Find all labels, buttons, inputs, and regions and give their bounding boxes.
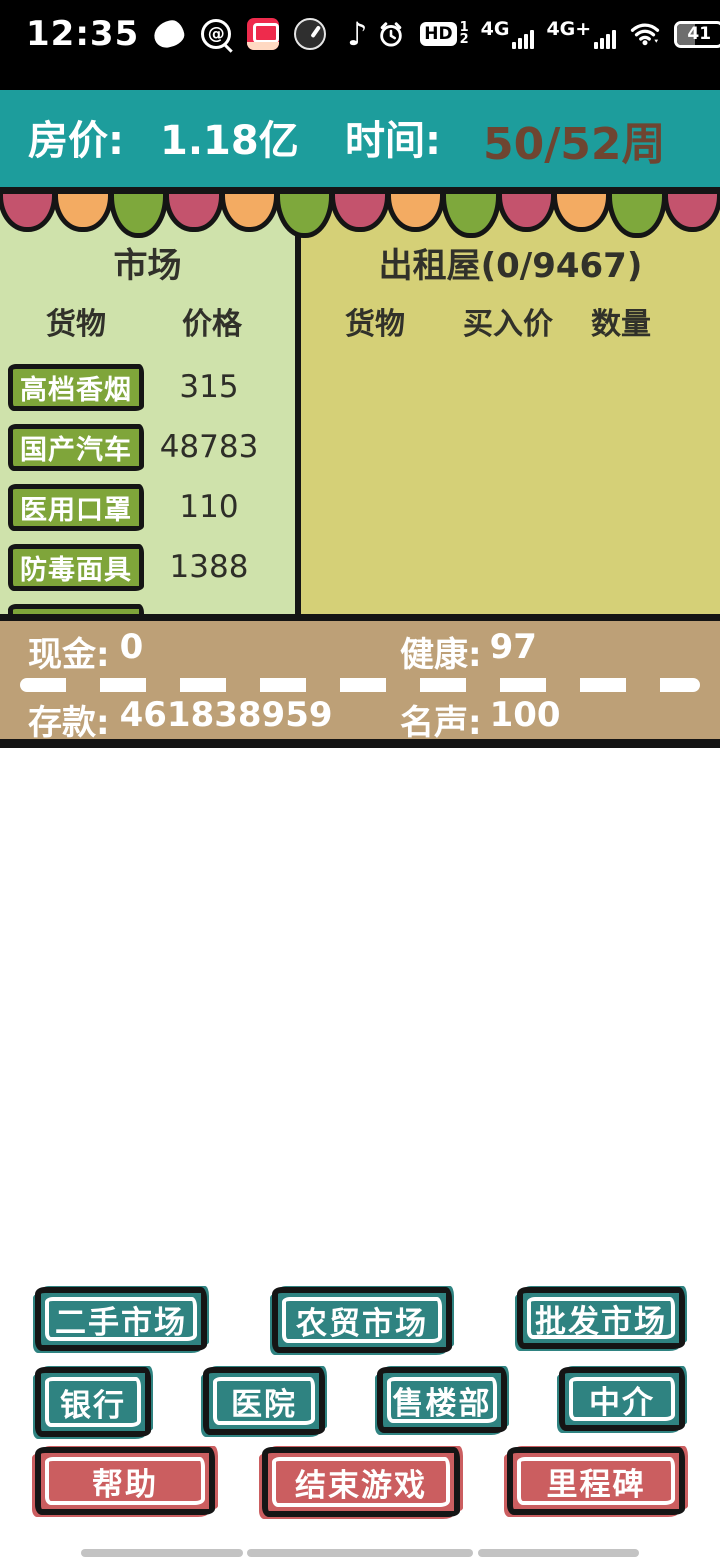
awning-flag: [109, 194, 168, 238]
awning-flag: [220, 194, 279, 232]
goods-button-domestic-car[interactable]: 国产汽车: [8, 424, 144, 471]
rental-house-panel: 出租屋(0/9467) 货物 买入价 数量: [301, 194, 720, 614]
clock-time: 12:35: [26, 14, 139, 54]
awning-flag: [0, 194, 57, 232]
messenger-notification-icon: [152, 17, 186, 51]
market-row: 高档香烟 315: [0, 357, 295, 417]
awning-decoration: [0, 194, 720, 238]
house-price-label: 房价:: [28, 108, 124, 166]
awning-flag: [552, 194, 611, 232]
sim1-signal-icon: 4G: [481, 20, 535, 49]
milestone-button[interactable]: 里程碑: [507, 1447, 685, 1515]
market-item-list: 高档香烟 315 国产汽车 48783 医用口罩 110 防毒面具 1388 饲…: [0, 357, 295, 657]
house-price-value: 1.18亿: [160, 108, 299, 166]
goods-button-gas-masks[interactable]: 防毒面具: [8, 544, 144, 591]
goods-button-cigarettes[interactable]: 高档香烟: [8, 364, 144, 411]
rental-col-quantity: 数量: [591, 299, 651, 343]
market-col-price: 价格: [182, 299, 242, 343]
battery-icon: 41: [674, 21, 720, 48]
game-header: 房价: 1.18亿 时间: 50/52周: [0, 90, 720, 194]
goods-price: 315: [144, 369, 274, 405]
farmers-market-button[interactable]: 农贸市场: [272, 1287, 452, 1353]
market-row: 防毒面具 1388: [0, 537, 295, 597]
goods-price: 48783: [144, 429, 274, 465]
secondhand-market-button[interactable]: 二手市场: [35, 1287, 207, 1351]
panels-area: 市场 货物 价格 高档香烟 315 国产汽车 48783 医用口罩 110 防毒…: [0, 194, 720, 614]
market-title: 市场: [0, 238, 295, 287]
deposit-label: 存款:: [28, 695, 110, 744]
sim2-signal-icon: 4G+: [546, 20, 616, 49]
awning-flag: [607, 194, 666, 238]
fame-label: 名声:: [400, 695, 482, 744]
battery-percent: 41: [687, 24, 711, 44]
time-label: 时间:: [345, 108, 441, 166]
alarm-clock-icon: [374, 17, 408, 51]
market-panel: 市场 货物 价格 高档香烟 315 国产汽车 48783 医用口罩 110 防毒…: [0, 194, 301, 614]
sales-office-button[interactable]: 售楼部: [377, 1367, 507, 1433]
market-row: 国产汽车 48783: [0, 417, 295, 477]
awning-flag: [275, 194, 334, 238]
baidu-search-notification-icon: @: [199, 17, 233, 51]
hd-voice-icon: HD 12: [420, 22, 468, 46]
awning-flag: [663, 194, 720, 232]
cash-value: 0: [120, 627, 144, 676]
rental-col-goods: 货物: [345, 299, 405, 343]
awning-flag: [386, 194, 445, 232]
nav-bar-segment[interactable]: [81, 1549, 243, 1557]
health-label: 健康:: [400, 627, 482, 676]
fame-value: 100: [490, 695, 561, 744]
awning-flag: [441, 194, 500, 238]
music-note-notification-icon: ♪: [340, 17, 374, 51]
nav-bar-segment[interactable]: [247, 1549, 473, 1557]
agency-button[interactable]: 中介: [559, 1367, 685, 1431]
rental-title: 出租屋(0/9467): [301, 238, 720, 287]
goods-button-medical-masks[interactable]: 医用口罩: [8, 484, 144, 531]
bank-button[interactable]: 银行: [35, 1367, 151, 1437]
hospital-button[interactable]: 医院: [203, 1367, 325, 1435]
end-game-button[interactable]: 结束游戏: [262, 1447, 460, 1517]
deposit-value: 461838959: [120, 695, 333, 744]
goods-price: 1388: [144, 549, 274, 585]
road-dashed-line: [20, 678, 700, 692]
health-value: 97: [490, 627, 537, 676]
rental-col-buy-price: 买入价: [463, 299, 553, 343]
status-bar: 12:35 @ ♪ HD 12 4G 4G+ 41: [0, 0, 720, 90]
action-row-places: 银行 医院 售楼部 中介: [0, 1367, 720, 1437]
awning-flag: [497, 194, 556, 232]
browser-speedometer-notification-icon: [293, 17, 327, 51]
help-button[interactable]: 帮助: [35, 1447, 215, 1515]
kuaishou-notification-icon: [246, 17, 280, 51]
market-col-goods: 货物: [46, 299, 106, 343]
goods-price: 110: [144, 489, 274, 525]
stats-road-bar: 现金: 0 健康: 97 存款: 461838959 名声: 100: [0, 614, 720, 748]
market-row: 医用口罩 110: [0, 477, 295, 537]
action-row-markets: 二手市场 农贸市场 批发市场: [0, 1287, 720, 1353]
nav-bar-segment[interactable]: [478, 1549, 639, 1557]
android-navigation-area: [0, 1549, 720, 1558]
awning-flag: [164, 194, 223, 232]
time-value: 50/52周: [483, 108, 666, 172]
action-row-system: 帮助 结束游戏 里程碑: [0, 1447, 720, 1517]
cash-label: 现金:: [28, 627, 110, 676]
wholesale-market-button[interactable]: 批发市场: [517, 1287, 685, 1349]
awning-flag: [53, 194, 112, 232]
wifi-icon: [628, 17, 662, 51]
awning-flag: [330, 194, 389, 232]
